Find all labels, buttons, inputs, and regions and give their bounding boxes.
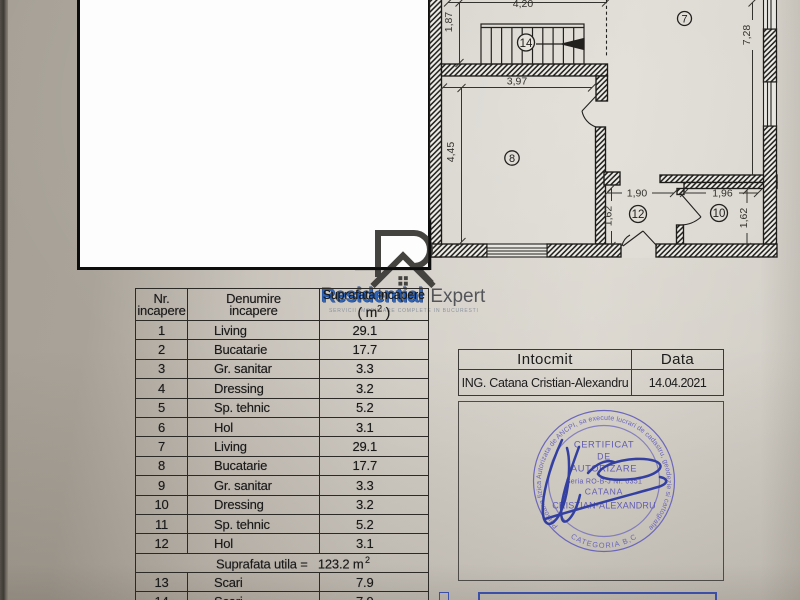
svg-text:4,20: 4,20 (513, 0, 534, 10)
svg-text:CATANA: CATANA (585, 487, 623, 497)
svg-text:1,62: 1,62 (738, 208, 750, 229)
svg-text:1,96: 1,96 (712, 188, 733, 200)
svg-text:7,28: 7,28 (741, 25, 753, 46)
svg-text:1,62: 1,62 (603, 206, 615, 227)
svg-text:7: 7 (681, 14, 687, 26)
svg-text:10: 10 (713, 208, 726, 220)
svg-text:8: 8 (509, 153, 515, 165)
svg-text:1,90: 1,90 (627, 188, 648, 200)
svg-text:3,97: 3,97 (507, 76, 528, 88)
svg-text:CERTIFICAT: CERTIFICAT (574, 439, 634, 450)
svg-text:14: 14 (520, 38, 533, 50)
svg-text:1,87: 1,87 (443, 12, 455, 33)
svg-text:12: 12 (632, 209, 645, 221)
svg-text:4,45: 4,45 (445, 142, 457, 163)
